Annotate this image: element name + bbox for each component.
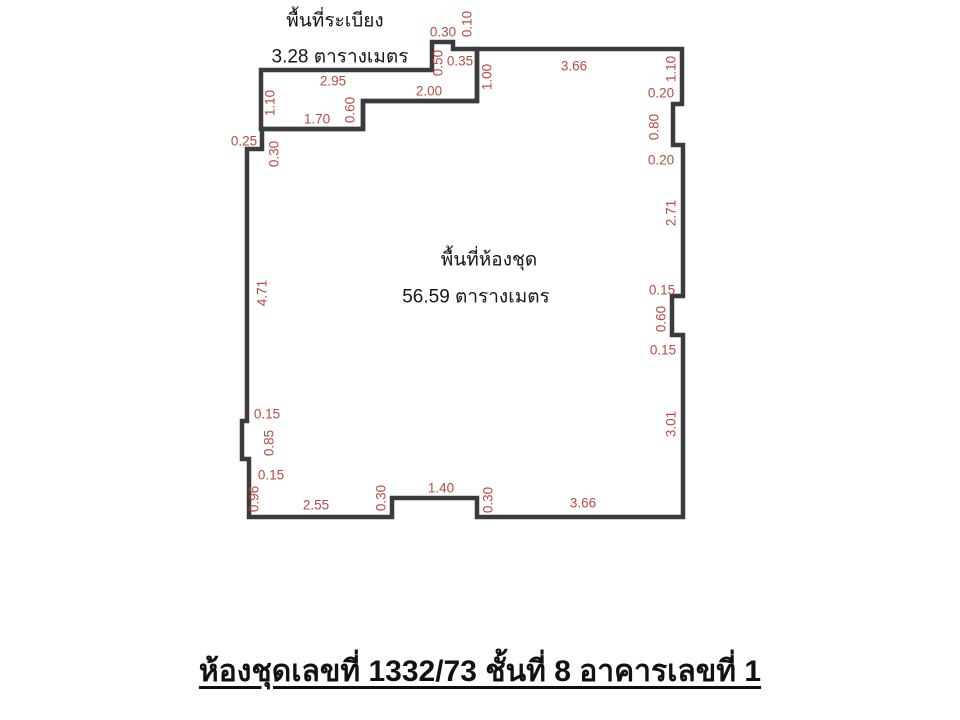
dimension-label: 0.30 [374, 485, 389, 511]
dimension-label: 2.95 [320, 74, 346, 89]
dimension-label: 0.85 [262, 430, 277, 456]
dimension-label: 2.55 [303, 498, 329, 513]
dimension-label: 3.66 [561, 59, 587, 74]
dimension-label: 3.66 [570, 496, 596, 511]
dimension-label: 3.01 [664, 411, 679, 437]
dimension-label: 0.35 [447, 54, 473, 69]
dimension-label: 0.30 [430, 25, 456, 40]
dimension-label: 1.70 [304, 112, 330, 127]
dimension-label: 0.80 [647, 114, 662, 140]
dimension-label: 0.15 [258, 468, 284, 483]
dimension-label: 0.20 [648, 153, 674, 168]
dimension-label: 1.40 [428, 481, 454, 496]
dimension-label: 2.71 [664, 200, 679, 226]
unit-area: 56.59 ตารางเมตร [402, 287, 550, 308]
unit-address-title: ห้องชุดเลขที่ 1332/73 ชั้นที่ 8 อาคารเลข… [0, 648, 960, 695]
dimension-label: 0.96 [247, 486, 262, 512]
dimension-label: 0.60 [654, 306, 669, 332]
dimension-label: 0.15 [254, 407, 280, 422]
dimension-label: 2.00 [416, 84, 442, 99]
dimension-label: 1.00 [480, 64, 495, 90]
floor-plan-drawing: พื้นที่ระเบียง 3.28 ตารางเมตร พื้นที่ห้อ… [0, 0, 960, 720]
dimension-label: 0.30 [267, 141, 282, 167]
dimension-label: 0.20 [648, 86, 674, 101]
dimension-label: 1.10 [263, 90, 278, 116]
dimension-label: 1.10 [664, 56, 679, 82]
dimension-label: 0.60 [343, 97, 358, 123]
dimension-label: 0.15 [649, 283, 675, 298]
floor-plan-page: พื้นที่ระเบียง 3.28 ตารางเมตร พื้นที่ห้อ… [0, 0, 960, 720]
dimension-label: 0.30 [481, 487, 496, 513]
balcony-area: 3.28 ตารางเมตร [272, 47, 409, 68]
dimension-label: 0.50 [431, 50, 446, 76]
dimension-label: 0.15 [650, 343, 676, 358]
dimension-label: 0.25 [231, 134, 257, 149]
unit-title: พื้นที่ห้องชุด [441, 246, 537, 272]
balcony-title: พื้นที่ระเบียง [286, 7, 383, 32]
dimension-label: 4.71 [255, 280, 270, 306]
dimension-label: 0.10 [460, 11, 475, 37]
